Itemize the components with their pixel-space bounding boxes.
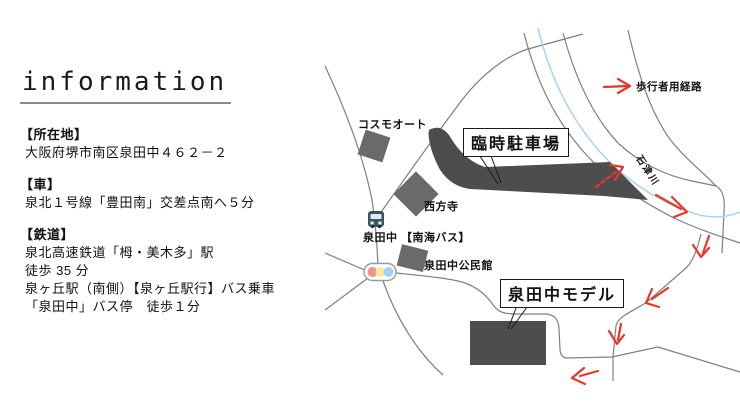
pedestrian-route-label: 歩行者用経路	[636, 79, 702, 94]
section-railway-heading: 【鉄道】	[20, 226, 320, 244]
address-line: 大阪府堺市南区泉田中４６２－２	[20, 144, 320, 162]
railway-line: 泉北高速鉄道「栂・美木多」駅	[20, 244, 320, 262]
road-southwest	[325, 278, 368, 310]
model-house-label-box: 泉田中モデル	[500, 279, 624, 308]
section-car-heading: 【車】	[20, 176, 320, 194]
cosmo-auto-label: コスモオート	[358, 116, 427, 132]
access-info-page: コスモオート 臨時駐車場 西方寺 泉田中 【南海バス】 泉田中公民館 泉田中モデ…	[0, 0, 740, 404]
bus-stop-label: 泉田中 【南海バス】	[363, 229, 470, 245]
saihoji-temple-label: 西方寺	[424, 198, 459, 214]
river-bank-north	[563, 33, 724, 253]
section-railway: 【鉄道】 泉北高速鉄道「栂・美木多」駅 徒歩 35 分 泉ヶ丘駅（南側）【泉ヶ丘…	[20, 226, 320, 316]
info-panel: information 【所在地】 大阪府堺市南区泉田中４６２－２ 【車】 泉北…	[20, 68, 320, 316]
arrow-down-right-icon	[656, 195, 687, 217]
model-house-building	[470, 321, 546, 365]
section-car: 【車】 泉北１号線「豊田南」交差点南へ５分	[20, 176, 320, 212]
car-line: 泉北１号線「豊田南」交差点南へ５分	[20, 194, 320, 212]
road-southeast-curve	[383, 281, 443, 375]
road-west	[325, 253, 367, 271]
arrow-down-icon	[693, 236, 709, 257]
traffic-light-icon	[364, 264, 396, 281]
pedestrian-route-arrows	[572, 79, 709, 384]
railway-line: 「泉田中」バス停 徒歩１分	[20, 298, 320, 316]
buildings	[358, 128, 648, 365]
arrow-right-icon	[604, 79, 630, 93]
arrow-down-left-icon	[646, 288, 668, 307]
section-address-heading: 【所在地】	[20, 126, 320, 144]
railway-line: 泉ヶ丘駅（南側）【泉ヶ丘駅行】バス乗車	[20, 280, 320, 298]
temporary-parking-label-box: 臨時駐車場	[463, 128, 569, 157]
railway-line: 徒歩 35 分	[20, 262, 320, 280]
section-address: 【所在地】 大阪府堺市南区泉田中４６２－２	[20, 126, 320, 162]
arrow-left-icon	[572, 368, 598, 384]
page-title: information	[20, 68, 231, 104]
cosmo-auto-building	[358, 130, 391, 163]
bus-stop-icon	[368, 211, 384, 228]
community-center-label: 泉田中公民館	[424, 257, 493, 273]
